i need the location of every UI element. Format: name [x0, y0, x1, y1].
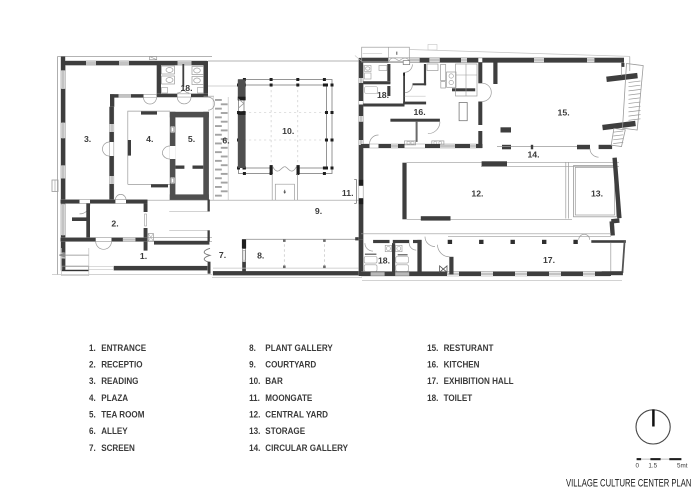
svg-text:SCREEN: SCREEN	[101, 442, 135, 453]
svg-text:2.: 2.	[89, 359, 96, 370]
svg-text:17.: 17.	[427, 376, 438, 387]
svg-text:RECEPTIO: RECEPTIO	[101, 359, 143, 370]
svg-text:0: 0	[635, 462, 639, 469]
svg-text:2.: 2.	[111, 219, 118, 229]
svg-text:CIRCULAR GALLERY: CIRCULAR GALLERY	[265, 442, 348, 453]
svg-text:VILLAGE CULTURE CENTER PLAN: VILLAGE CULTURE CENTER PLAN	[566, 478, 691, 490]
svg-text:15.: 15.	[558, 108, 570, 118]
svg-text:8.: 8.	[257, 251, 264, 261]
svg-text:CENTRAL YARD: CENTRAL YARD	[265, 409, 328, 420]
svg-text:6.: 6.	[222, 135, 229, 145]
svg-text:COURTYARD: COURTYARD	[265, 359, 316, 370]
svg-text:18.: 18.	[377, 90, 389, 100]
svg-text:4.: 4.	[89, 392, 96, 403]
svg-text:1.: 1.	[89, 342, 96, 353]
svg-text:13.: 13.	[591, 189, 603, 199]
svg-text:15.: 15.	[427, 342, 438, 353]
svg-text:5.: 5.	[89, 409, 96, 420]
svg-text:18.: 18.	[427, 392, 438, 403]
svg-text:TEA ROOM: TEA ROOM	[101, 409, 144, 420]
svg-text:3.: 3.	[84, 134, 91, 144]
svg-text:3.: 3.	[89, 376, 96, 387]
svg-text:16.: 16.	[414, 107, 426, 117]
svg-text:11.: 11.	[342, 188, 354, 198]
svg-text:18.: 18.	[180, 83, 192, 93]
svg-text:1.: 1.	[140, 251, 147, 261]
svg-text:EXHIBITION HALL: EXHIBITION HALL	[444, 376, 515, 387]
svg-text:14.: 14.	[527, 150, 539, 160]
svg-text:MOONGATE: MOONGATE	[265, 392, 312, 403]
svg-text:RESTURANT: RESTURANT	[444, 342, 494, 353]
svg-text:11.: 11.	[249, 392, 260, 403]
svg-text:9.: 9.	[249, 359, 256, 370]
svg-text:16.: 16.	[427, 359, 438, 370]
svg-text:7.: 7.	[219, 250, 226, 260]
svg-text:6.: 6.	[89, 426, 96, 437]
svg-text:8.: 8.	[249, 342, 256, 353]
svg-text:TOILET: TOILET	[444, 392, 473, 403]
svg-text:13.: 13.	[249, 426, 260, 437]
svg-text:4.: 4.	[146, 134, 153, 144]
svg-text:5mt: 5mt	[677, 462, 688, 469]
svg-text:ENTRANCE: ENTRANCE	[101, 342, 146, 353]
svg-text:1.5: 1.5	[648, 462, 657, 469]
svg-text:12.: 12.	[249, 409, 260, 420]
svg-text:STORAGE: STORAGE	[265, 426, 305, 437]
svg-text:12.: 12.	[471, 189, 483, 199]
svg-text:7.: 7.	[89, 442, 96, 453]
svg-text:5.: 5.	[188, 134, 195, 144]
svg-text:18.: 18.	[378, 256, 390, 266]
svg-text:17.: 17.	[543, 255, 555, 265]
svg-text:ALLEY: ALLEY	[101, 426, 128, 437]
svg-text:14.: 14.	[249, 442, 260, 453]
svg-text:10.: 10.	[249, 376, 260, 387]
svg-text:PLANT GALLERY: PLANT GALLERY	[265, 342, 333, 353]
svg-text:9.: 9.	[315, 206, 322, 216]
svg-text:KITCHEN: KITCHEN	[444, 359, 480, 370]
svg-text:10.: 10.	[282, 126, 294, 136]
svg-text:READING: READING	[101, 376, 138, 387]
svg-text:PLAZA: PLAZA	[101, 392, 129, 403]
svg-text:BAR: BAR	[265, 376, 283, 387]
